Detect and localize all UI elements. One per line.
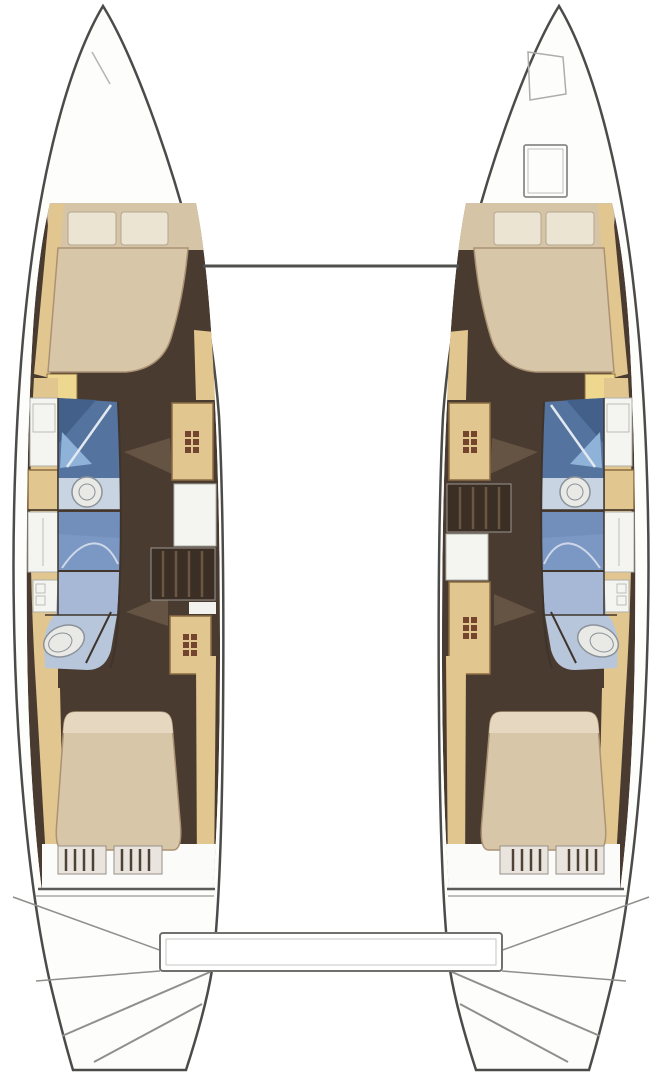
washbasin-icon (72, 477, 102, 507)
bathroom-floor (56, 572, 120, 615)
starboard-hull-interior (442, 203, 635, 891)
pillow (494, 212, 541, 245)
pillow (121, 212, 168, 245)
pillow (68, 212, 116, 245)
deck-hatch-icon (524, 145, 567, 197)
companionway-steps (151, 548, 215, 600)
port-hull (13, 6, 223, 1070)
locker (604, 470, 634, 510)
locker (28, 470, 58, 510)
starboard-hull (439, 6, 649, 1070)
bathroom-floor (542, 572, 606, 615)
stair-locker (449, 403, 490, 480)
landing (174, 484, 216, 546)
landing (446, 534, 488, 580)
pillow (546, 212, 594, 245)
port-hull-interior (27, 203, 220, 891)
boat-floor-plan (0, 0, 662, 1080)
washbasin-icon (560, 477, 590, 507)
stair-locker (172, 403, 213, 480)
companionway-steps (447, 484, 511, 532)
